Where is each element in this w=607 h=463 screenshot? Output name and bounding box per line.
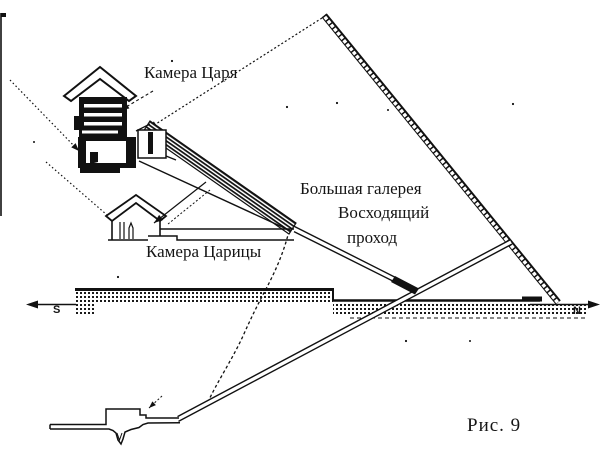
pyramid-cross-section-figure: Камера Царя Камера Царицы Большая галере…	[0, 0, 607, 463]
subterranean-chamber	[50, 409, 180, 444]
base-corner-blob	[522, 297, 542, 302]
kings-chamber	[78, 137, 136, 173]
north-compass-label: N	[573, 306, 581, 318]
figure-caption: Рис. 9	[467, 416, 521, 436]
queens-passage-floor	[148, 236, 294, 240]
kings-gabled-roof	[64, 67, 136, 101]
page-edge-artifact	[1, 13, 6, 216]
queens-chamber-complex	[106, 195, 166, 240]
queens-gabled-roof	[106, 195, 166, 221]
ascending-passage-label-line1: Восходящий	[338, 204, 429, 222]
portcullis-slab	[148, 132, 153, 154]
south-compass-label: S	[53, 305, 60, 317]
grand-gallery-label: Большая галерея	[300, 180, 422, 198]
queens-chamber-label: Камера Царицы	[146, 243, 261, 261]
sarcophagus	[90, 152, 98, 164]
relieving-chambers	[74, 97, 127, 137]
south-arrowhead-icon	[26, 301, 38, 309]
kings-chamber-complex	[64, 67, 176, 173]
kings-chamber-label: Камера Царя	[144, 64, 237, 82]
diagram-line-art	[0, 0, 607, 463]
descending-passage	[178, 240, 512, 422]
south-arrow	[26, 301, 76, 309]
base-hatch-left	[76, 292, 333, 303]
granite-plugs	[391, 276, 419, 295]
base-hatch-left-foot	[76, 303, 94, 316]
subterranean-floor-and-pit	[50, 423, 180, 444]
subterranean-label-arrow	[147, 396, 162, 410]
ascending-passage-label-line2: проход	[347, 229, 397, 247]
subterranean-ceiling	[50, 409, 179, 425]
queens-label-arrow	[152, 182, 210, 226]
north-arrowhead-icon	[588, 301, 600, 309]
ground-base	[75, 288, 587, 318]
queens-niche	[129, 223, 133, 239]
queens-passage	[148, 229, 294, 240]
